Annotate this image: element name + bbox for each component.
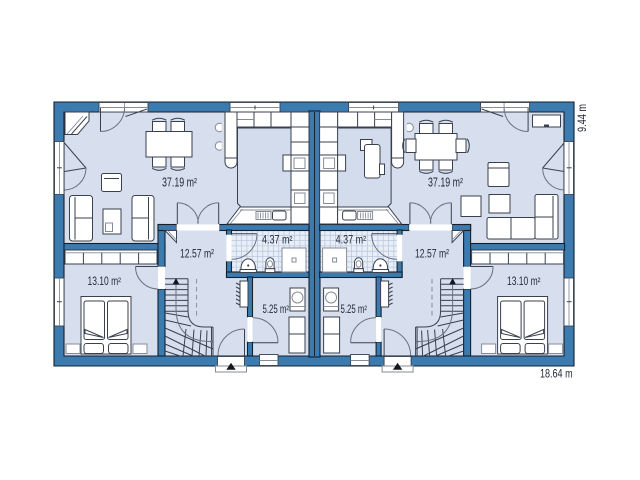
svg-text:13.10 m²: 13.10 m² <box>88 275 122 288</box>
svg-text:4.37 m²: 4.37 m² <box>336 233 367 246</box>
svg-text:5.25 m²: 5.25 m² <box>263 303 290 316</box>
svg-text:5.25 m²: 5.25 m² <box>341 303 368 316</box>
svg-text:18.64 m: 18.64 m <box>540 367 573 381</box>
svg-text:12.57 m²: 12.57 m² <box>415 246 449 260</box>
svg-text:9.44 m: 9.44 m <box>575 104 589 132</box>
svg-text:13.10 m²: 13.10 m² <box>507 275 541 288</box>
svg-text:4.37 m²: 4.37 m² <box>262 233 293 246</box>
svg-text:37.19 m²: 37.19 m² <box>428 175 463 189</box>
svg-text:37.19 m²: 37.19 m² <box>162 175 197 189</box>
svg-text:12.57 m²: 12.57 m² <box>180 246 214 260</box>
